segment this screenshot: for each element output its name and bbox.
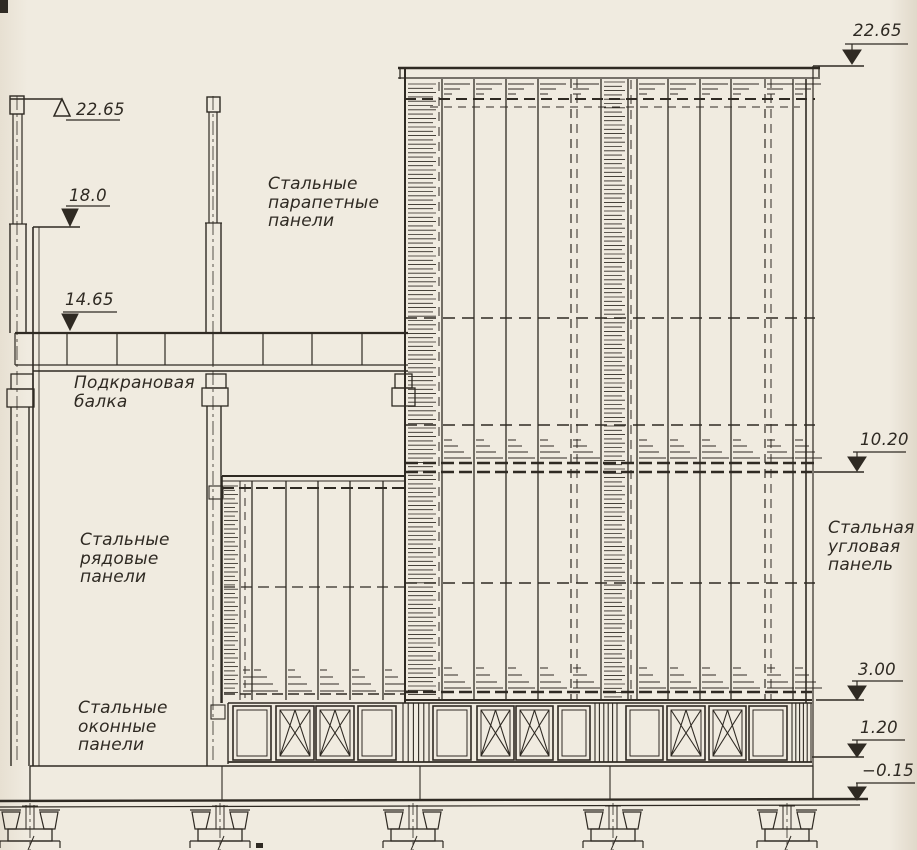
label-row-panels: Стальные рядовые панели (80, 531, 170, 587)
label-parapet-panels: Стальные парапетные панели (268, 175, 379, 231)
elevation-left-crane: 14.65 (65, 291, 114, 308)
elevation-right-parapet: 22.65 (853, 22, 902, 39)
drawing-sheet: Стальные парапетные панели Подкрановая б… (0, 0, 917, 850)
foundations (0, 803, 817, 850)
window-panel-band (233, 703, 811, 762)
label-crane-beam: Подкрановая балка (74, 374, 195, 411)
label-corner-panel: Стальная угловая панель (828, 519, 914, 575)
elevation-right-sill: 1.20 (860, 719, 898, 736)
elevation-ground: −0.15 (862, 762, 914, 779)
elevation-right-low: 3.00 (858, 661, 896, 678)
elevation-left-upper: 18.0 (69, 187, 107, 204)
elevation-right-mid: 10.20 (860, 431, 909, 448)
label-window-panels: Стальные оконные панели (78, 699, 168, 755)
elevation-left-parapet: 22.65 (76, 101, 125, 118)
